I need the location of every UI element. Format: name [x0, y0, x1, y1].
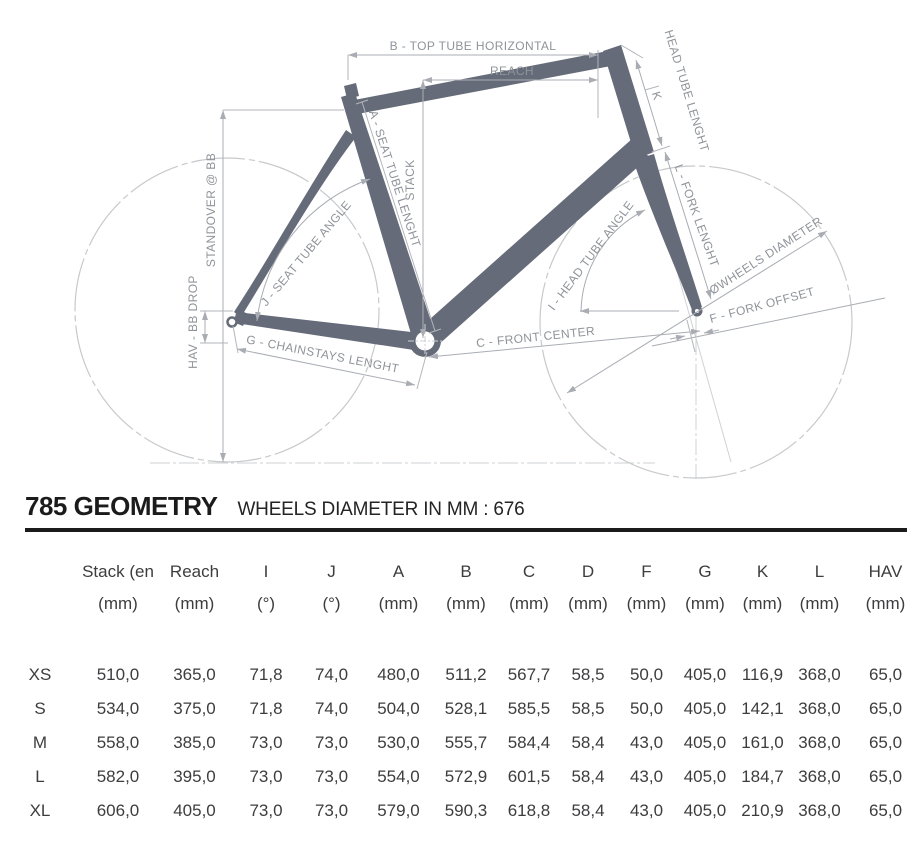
table-cell: 65,0	[848, 726, 923, 760]
table-cell: 73,0	[299, 726, 364, 760]
column-unit: (mm)	[80, 588, 156, 620]
table-cell: 585,5	[499, 692, 559, 726]
table-row: XS510,0365,071,874,0480,0511,2567,758,55…	[0, 658, 923, 692]
table-cell: 142,1	[734, 692, 791, 726]
reach-label: REACH	[490, 64, 534, 78]
column-unit: (mm)	[433, 588, 499, 620]
table-cell: 74,0	[299, 692, 364, 726]
geometry-table: Stack (enReachIJABCDFGKLHAV(mm)(mm)(°)(°…	[0, 556, 923, 828]
column-label: K	[734, 556, 791, 588]
column-label: L	[791, 556, 848, 588]
bb-drop-label: HAV - BB DROP	[186, 275, 200, 369]
table-cell: 43,0	[617, 726, 676, 760]
table-cell: 590,3	[433, 794, 499, 828]
column-label: J	[299, 556, 364, 588]
head-tube	[603, 45, 654, 159]
column-unit: (mm)	[499, 588, 559, 620]
table-cell: 584,4	[499, 726, 559, 760]
column-label: B	[433, 556, 499, 588]
table-cell: 375,0	[156, 692, 233, 726]
corner-cell	[0, 556, 80, 588]
column-label: HAV	[848, 556, 923, 588]
table-cell: 65,0	[848, 692, 923, 726]
table-cell: 65,0	[848, 794, 923, 828]
table-cell: 567,7	[499, 658, 559, 692]
section-header: 785 GEOMETRY WHEELS DIAMETER IN MM : 676	[25, 491, 907, 532]
table-cell: 161,0	[734, 726, 791, 760]
corner-cell	[0, 588, 80, 620]
table-cell: 606,0	[80, 794, 156, 828]
column-unit: (mm)	[364, 588, 433, 620]
table-cell: 368,0	[791, 692, 848, 726]
table-cell: 368,0	[791, 726, 848, 760]
column-unit: (°)	[299, 588, 364, 620]
table-row: L582,0395,073,073,0554,0572,9601,558,443…	[0, 760, 923, 794]
table-header: Stack (enReachIJABCDFGKLHAV(mm)(mm)(°)(°…	[0, 556, 923, 620]
bike-frame	[228, 45, 703, 357]
row-size-label: XS	[0, 658, 80, 692]
standover-label: STANDOVER @ BB	[204, 153, 218, 267]
spacer-row	[0, 620, 923, 658]
table-cell: 554,0	[364, 760, 433, 794]
table-cell: 480,0	[364, 658, 433, 692]
geometry-page: B - TOP TUBE HORIZONTAL REACH STACK A - …	[0, 0, 923, 858]
table-cell: 210,9	[734, 794, 791, 828]
row-size-label: L	[0, 760, 80, 794]
head-tube-length-label: HEAD TUBE LENGHT	[662, 28, 713, 154]
wheels-diameter-note: WHEELS DIAMETER IN MM : 676	[237, 499, 524, 521]
table-cell: 73,0	[299, 760, 364, 794]
column-label: F	[617, 556, 676, 588]
column-label: I	[233, 556, 299, 588]
table-cell: 116,9	[734, 658, 791, 692]
column-label: Reach	[156, 556, 233, 588]
table-cell: 555,7	[433, 726, 499, 760]
top-tube	[347, 50, 613, 116]
table-cell: 50,0	[617, 658, 676, 692]
frame-geometry-diagram: B - TOP TUBE HORIZONTAL REACH STACK A - …	[0, 0, 923, 480]
table-cell: 58,5	[559, 692, 617, 726]
table-cell: 534,0	[80, 692, 156, 726]
table-cell: 65,0	[848, 760, 923, 794]
column-unit: (mm)	[559, 588, 617, 620]
table-cell: 405,0	[676, 760, 734, 794]
table-cell: 528,1	[433, 692, 499, 726]
table-row: S534,0375,071,874,0504,0528,1585,558,550…	[0, 692, 923, 726]
table-cell: 50,0	[617, 692, 676, 726]
table-cell: 510,0	[80, 658, 156, 692]
table-cell: 58,4	[559, 760, 617, 794]
table-cell: 618,8	[499, 794, 559, 828]
column-label: D	[559, 556, 617, 588]
rear-wheel	[75, 158, 379, 462]
table-cell: 73,0	[233, 760, 299, 794]
page-title: 785 GEOMETRY	[25, 491, 217, 522]
column-unit: (mm)	[617, 588, 676, 620]
table-row: M558,0385,073,073,0530,0555,7584,458,443…	[0, 726, 923, 760]
table-cell: 43,0	[617, 760, 676, 794]
table-cell: 365,0	[156, 658, 233, 692]
table-cell: 73,0	[233, 794, 299, 828]
header-rule	[25, 528, 907, 532]
table-cell: 368,0	[791, 760, 848, 794]
table-cell: 71,8	[233, 692, 299, 726]
column-label: Stack (en	[80, 556, 156, 588]
row-size-label: S	[0, 692, 80, 726]
table-cell: 368,0	[791, 794, 848, 828]
table-cell: 395,0	[156, 760, 233, 794]
down-tube	[421, 138, 649, 346]
table-cell: 405,0	[676, 794, 734, 828]
table-cell: 504,0	[364, 692, 433, 726]
column-unit: (mm)	[734, 588, 791, 620]
table-cell: 58,4	[559, 726, 617, 760]
column-unit: (mm)	[156, 588, 233, 620]
seat-tube	[341, 93, 436, 344]
table-cell: 73,0	[299, 794, 364, 828]
front-center-label: C - FRONT CENTER	[475, 324, 595, 350]
table-cell: 405,0	[676, 658, 734, 692]
fork	[633, 154, 702, 310]
table-cell: 601,5	[499, 760, 559, 794]
table-cell: 58,5	[559, 658, 617, 692]
top-tube-label: B - TOP TUBE HORIZONTAL	[390, 39, 557, 53]
table-cell: 65,0	[848, 658, 923, 692]
table-body: XS510,0365,071,874,0480,0511,2567,758,55…	[0, 620, 923, 828]
table-cell: 43,0	[617, 794, 676, 828]
table-cell: 582,0	[80, 760, 156, 794]
table-cell: 71,8	[233, 658, 299, 692]
k-label: K	[649, 90, 665, 102]
reference-lines	[150, 52, 731, 479]
column-unit: (mm)	[676, 588, 734, 620]
column-unit: (mm)	[848, 588, 923, 620]
table-cell: 579,0	[364, 794, 433, 828]
column-unit: (mm)	[791, 588, 848, 620]
table-cell: 385,0	[156, 726, 233, 760]
rear-axle	[228, 318, 237, 327]
column-label: G	[676, 556, 734, 588]
table-cell: 511,2	[433, 658, 499, 692]
column-label: A	[364, 556, 433, 588]
row-size-label: XL	[0, 794, 80, 828]
table-cell: 405,0	[676, 692, 734, 726]
table-cell: 58,4	[559, 794, 617, 828]
table-cell: 73,0	[233, 726, 299, 760]
table-cell: 558,0	[80, 726, 156, 760]
column-label: C	[499, 556, 559, 588]
column-unit: (°)	[233, 588, 299, 620]
table-cell: 572,9	[433, 760, 499, 794]
table-cell: 74,0	[299, 658, 364, 692]
table-cell: 184,7	[734, 760, 791, 794]
table-row: XL606,0405,073,073,0579,0590,3618,858,44…	[0, 794, 923, 828]
table-cell: 405,0	[156, 794, 233, 828]
table-cell: 530,0	[364, 726, 433, 760]
row-size-label: M	[0, 726, 80, 760]
table-cell: 368,0	[791, 658, 848, 692]
table-cell: 405,0	[676, 726, 734, 760]
